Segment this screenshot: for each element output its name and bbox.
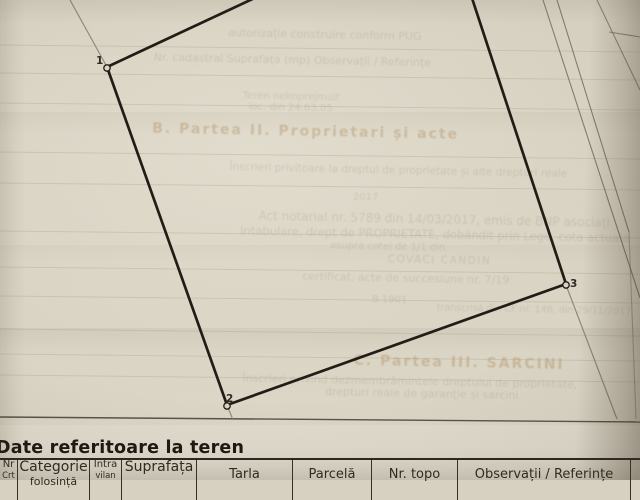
neighbor-boundary-line (629, 232, 636, 419)
faint-show-through-rule (0, 103, 640, 110)
vertex-label: 3 (570, 278, 577, 290)
vertex-circle (563, 282, 569, 288)
neighbor-boundary-line (557, 0, 629, 232)
column-sublabel: Crt (2, 472, 15, 481)
neighbor-boundary-line (543, 0, 640, 298)
table-column-header: Parcelă (293, 460, 372, 500)
faint-show-through-rule (0, 354, 640, 361)
neighbor-boundary-line (597, 0, 640, 90)
table-column-header: Suprafața (122, 460, 197, 500)
table-column-header: Nr. topo (372, 460, 458, 500)
faint-show-through-rule (0, 73, 640, 80)
parcel-edge (107, 67, 227, 405)
column-label: Intra (94, 460, 117, 471)
vertex-label: 1 (96, 55, 103, 67)
lower-boundary-line (0, 417, 640, 422)
column-sublabel: folosință (30, 476, 77, 487)
parcel-edge (443, 0, 566, 284)
faint-show-through-rule (0, 329, 640, 336)
boundary-extension-line (566, 285, 617, 419)
table-column-header: NrCrt (0, 460, 18, 500)
vertex-circle (104, 65, 110, 71)
column-label: Categorie (19, 460, 87, 475)
section-heading: Date referitoare la teren (0, 438, 244, 458)
parcel-edge (227, 284, 566, 405)
faint-show-through-rule (0, 231, 640, 238)
faint-show-through-rule (0, 267, 640, 274)
table-column-header: Intravilan (90, 460, 122, 500)
table-column-header: Observații / Referințe (458, 460, 631, 500)
faint-show-through-rule (0, 296, 640, 303)
parcel-sketch: 123 (0, 0, 640, 480)
column-label: Nr (3, 460, 15, 471)
parcel-edge (107, 0, 443, 67)
column-sublabel: vilan (95, 472, 115, 481)
faint-show-through-rule (0, 183, 640, 190)
faint-show-through-rule (0, 375, 640, 382)
vertex-label: 2 (226, 393, 233, 405)
column-label: Suprafața (125, 460, 194, 475)
faint-show-through-rule (0, 152, 640, 159)
table-column-header: Categoriefolosință (18, 460, 90, 500)
terrain-table-header-row: NrCrtCategoriefolosințăIntravilanSuprafa… (0, 460, 631, 480)
table-column-header: Tarla (197, 460, 293, 500)
